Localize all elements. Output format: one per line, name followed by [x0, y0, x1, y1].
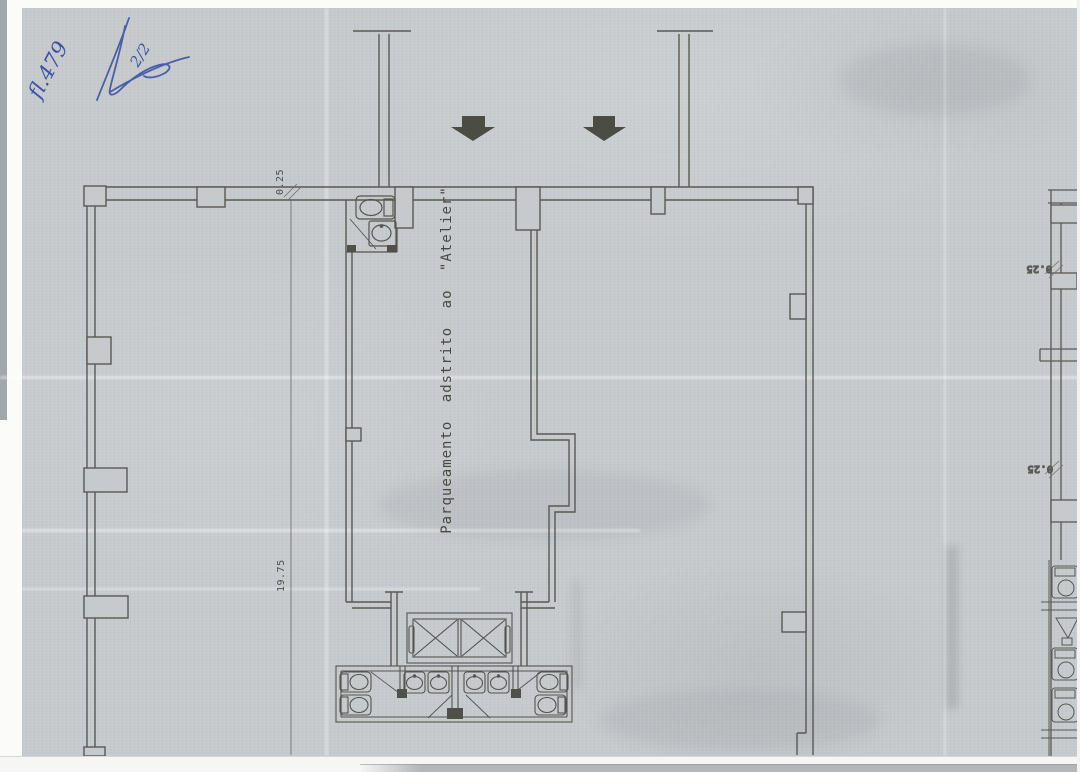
dimension-ticks	[1045, 261, 1063, 478]
page-fraction-text: 2/2	[126, 40, 155, 71]
dimension-annotations: 0.25 19.75	[275, 169, 301, 755]
toilet-icon	[537, 672, 568, 692]
dimension-line	[284, 184, 301, 755]
wall-stub	[1040, 349, 1080, 361]
toilet-icon	[340, 695, 371, 715]
dim-right-lower: 0.25	[1027, 463, 1053, 474]
entrance-arrows	[451, 116, 626, 141]
urinal-icon	[1056, 618, 1078, 645]
restroom-block	[336, 666, 572, 722]
edge-fixtures	[1041, 560, 1080, 757]
dim-right-upper: 0.25	[1026, 263, 1052, 274]
right-exterior-wall	[797, 187, 813, 755]
toilet-icon	[1052, 688, 1078, 722]
down-arrow-icon	[583, 116, 626, 141]
wall-pilasters	[1051, 205, 1080, 522]
sink-icon	[369, 221, 396, 246]
basin-icon	[428, 672, 449, 693]
top-wall-stubs	[353, 31, 713, 187]
page-ref-text: fl.479	[22, 37, 73, 104]
parking-bay-right-wall	[531, 230, 575, 602]
toilet-icon	[1052, 566, 1078, 598]
door-jamb	[387, 245, 397, 252]
door-jamb	[347, 245, 356, 252]
elevator-shaft-icon	[462, 620, 510, 656]
handwritten-annotation: fl.479 2/2	[22, 18, 189, 104]
right-edge-plan: 0.25 0.25	[1026, 190, 1080, 757]
scan-bottom-bar	[360, 764, 1080, 772]
lobby-connector-walls	[346, 592, 555, 666]
elevator-core	[407, 613, 512, 663]
dim-top-offset: 0.25	[275, 169, 286, 195]
room-label: Parqueamento adstrito ao "Atelier"	[439, 186, 455, 534]
elevator-shaft-icon	[409, 620, 457, 656]
parking-bay-left-wall	[346, 200, 361, 602]
basin-icon	[488, 672, 509, 693]
down-arrow-icon	[451, 116, 495, 141]
basin-icon	[464, 672, 485, 693]
floor-plan-drawing: fl.479 2/2	[0, 0, 1080, 772]
dim-left-length: 19.75	[276, 559, 287, 592]
basin-icon	[404, 672, 425, 693]
toilet-icon	[1052, 648, 1078, 680]
wc-room-top	[346, 196, 397, 252]
toilet-icon	[535, 695, 566, 715]
scanned-floor-plan-page: fl.479 2/2	[0, 0, 1080, 772]
toilet-icon	[340, 672, 371, 692]
